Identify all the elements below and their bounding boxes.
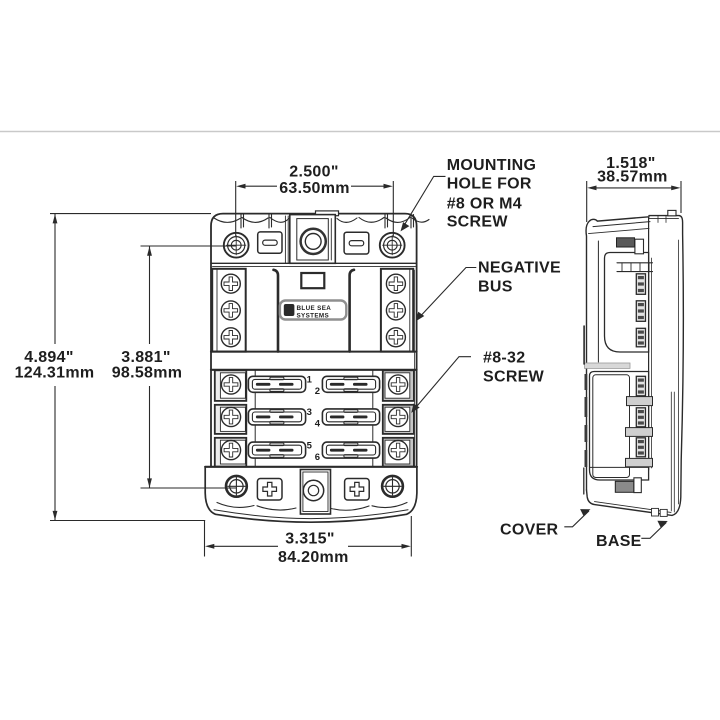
- svg-text:6: 6: [315, 452, 320, 463]
- svg-text:3: 3: [307, 407, 312, 418]
- svg-text:SCREW: SCREW: [483, 369, 545, 386]
- svg-text:5: 5: [307, 441, 313, 452]
- svg-text:4.894": 4.894": [24, 349, 73, 366]
- svg-text:3.315": 3.315": [285, 531, 334, 548]
- svg-text:SCREW: SCREW: [447, 214, 509, 231]
- svg-text:COVER: COVER: [500, 521, 559, 538]
- svg-text:1: 1: [307, 375, 313, 386]
- svg-text:BLUE SEA: BLUE SEA: [297, 305, 332, 312]
- svg-text:4: 4: [315, 419, 321, 430]
- svg-text:2.500": 2.500": [289, 163, 338, 180]
- svg-text:#8-32: #8-32: [483, 349, 525, 366]
- svg-text:NEGATIVE: NEGATIVE: [478, 260, 561, 277]
- svg-text:#8 OR M4: #8 OR M4: [447, 195, 522, 212]
- svg-text:SYSTEMS: SYSTEMS: [297, 312, 330, 319]
- svg-text:98.58mm: 98.58mm: [112, 365, 183, 382]
- svg-text:BUS: BUS: [478, 279, 513, 296]
- svg-text:BASE: BASE: [596, 533, 642, 550]
- svg-text:63.50mm: 63.50mm: [279, 180, 350, 197]
- svg-text:124.31mm: 124.31mm: [15, 365, 95, 382]
- svg-text:84.20mm: 84.20mm: [278, 549, 349, 566]
- svg-text:38.57mm: 38.57mm: [597, 169, 668, 186]
- svg-text:MOUNTING: MOUNTING: [447, 157, 537, 174]
- svg-text:3.881": 3.881": [121, 349, 170, 366]
- svg-text:2: 2: [315, 386, 320, 397]
- svg-text:HOLE FOR: HOLE FOR: [447, 176, 532, 193]
